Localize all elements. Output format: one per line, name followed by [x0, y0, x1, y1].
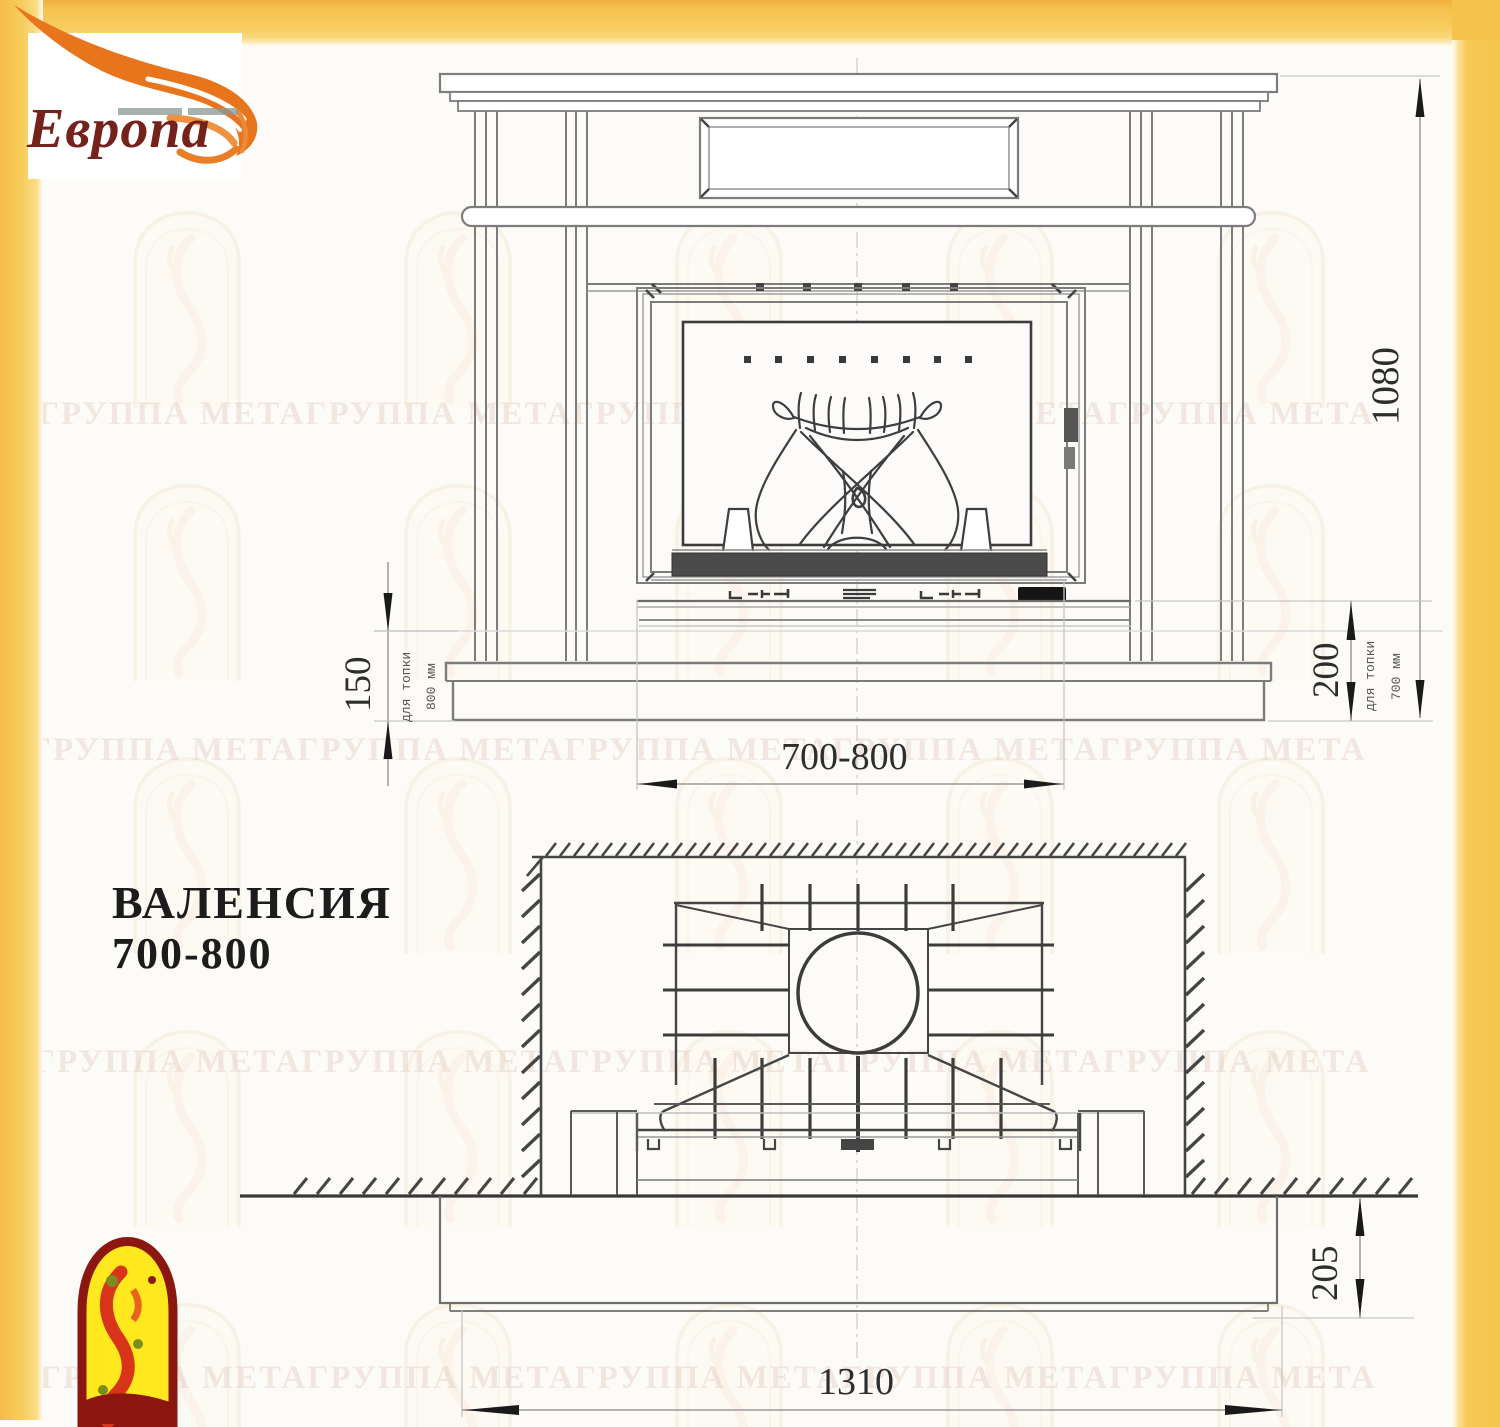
- svg-text:200: 200: [1306, 643, 1347, 699]
- svg-text:ВАЛЕНСИЯ: ВАЛЕНСИЯ: [112, 877, 392, 928]
- svg-text:700-800: 700-800: [112, 929, 273, 978]
- svg-text:ГРУППА МЕТАГРУППА МЕТАГРУППА М: ГРУППА МЕТАГРУППА МЕТАГРУППА МЕТАГРУППА …: [34, 1044, 1371, 1080]
- svg-text:для топки: для топки: [1363, 641, 1378, 711]
- svg-text:ГРУППА МЕТАГРУППА МЕТАГРУППА М: ГРУППА МЕТАГРУППА МЕТАГРУППА МЕТАГРУППА …: [40, 1360, 1377, 1396]
- svg-text:150: 150: [338, 657, 379, 713]
- svg-text:800 мм: 800 мм: [424, 663, 439, 710]
- svg-text:1310: 1310: [818, 1361, 894, 1403]
- svg-text:Европа: Европа: [26, 98, 211, 160]
- svg-text:205: 205: [1305, 1246, 1346, 1302]
- svg-text:ГРУППА МЕТАГРУППА МЕТАГРУППА М: ГРУППА МЕТАГРУППА МЕТАГРУППА МЕТАГРУППА …: [30, 732, 1367, 768]
- svg-text:1080: 1080: [1364, 347, 1407, 425]
- svg-text:для топки: для топки: [399, 652, 414, 722]
- svg-text:700-800: 700-800: [781, 736, 908, 778]
- svg-text:700 мм: 700 мм: [1389, 653, 1404, 700]
